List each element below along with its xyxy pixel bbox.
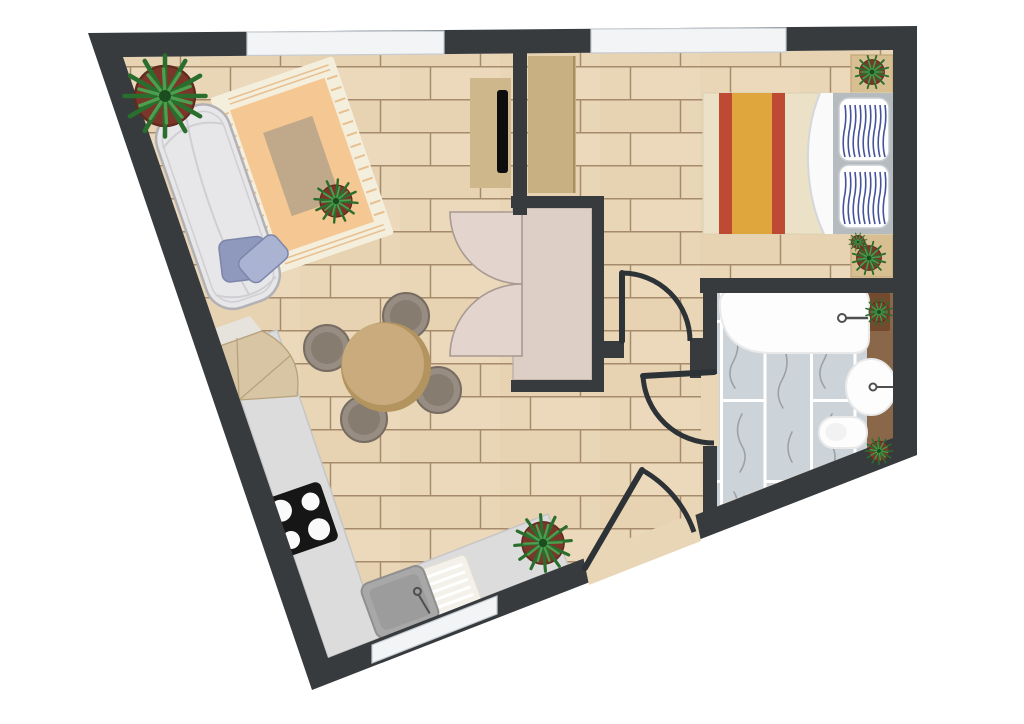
closet-wall-bottom bbox=[511, 380, 604, 392]
closet-wall-top bbox=[511, 196, 604, 208]
bathtub-faucet-icon bbox=[838, 314, 846, 322]
tv-area bbox=[470, 78, 511, 188]
plant-bath-planter bbox=[866, 299, 892, 325]
floor-plan-canvas bbox=[0, 0, 1024, 724]
closet-wall-right bbox=[592, 196, 604, 392]
double-bed bbox=[703, 93, 893, 234]
bathroom-wall-left-lower bbox=[703, 444, 717, 518]
window-bedroom bbox=[591, 28, 786, 53]
bathroom-doorway-threshold bbox=[701, 374, 719, 446]
washbasin-faucet-icon bbox=[870, 384, 877, 391]
bathtub bbox=[720, 289, 869, 353]
bathroom-wall-left-upper bbox=[703, 293, 717, 375]
blanket-stripe-red-right bbox=[772, 93, 785, 234]
wardrobe bbox=[528, 56, 576, 193]
dining-table-top bbox=[342, 323, 424, 405]
blanket-stripe-red-left bbox=[719, 93, 732, 234]
dining-chair-seat bbox=[311, 332, 343, 364]
toilet-bowl bbox=[825, 423, 847, 441]
window-living bbox=[247, 31, 444, 56]
blanket-stripe-orange bbox=[732, 93, 772, 234]
tv bbox=[497, 90, 508, 173]
bathroom-wall-top bbox=[700, 278, 895, 293]
bathroom-door-leaf bbox=[643, 372, 714, 376]
plant-sprig bbox=[849, 233, 867, 251]
plant-nightstand-top bbox=[856, 56, 888, 88]
partition-living-bedroom bbox=[513, 52, 527, 215]
floor-plan bbox=[0, 0, 1024, 724]
closet-interior bbox=[513, 208, 592, 380]
